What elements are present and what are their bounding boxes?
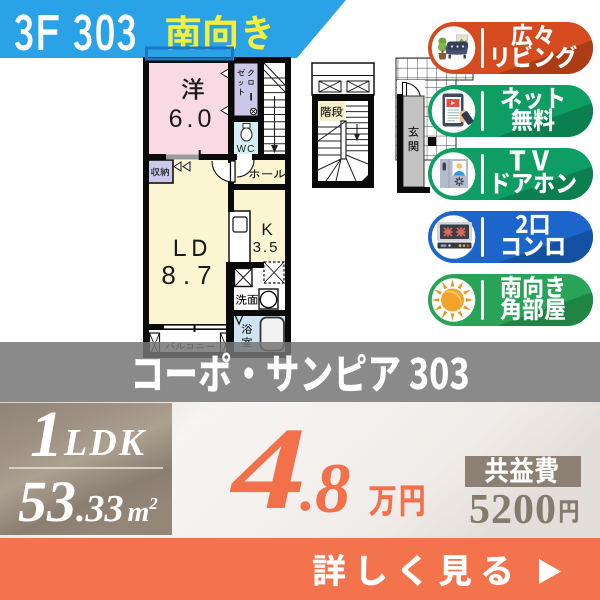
svg-text:3.5: 3.5 bbox=[253, 239, 280, 256]
svg-text:8.7: 8.7 bbox=[161, 260, 218, 290]
svg-text:8: 8 bbox=[315, 450, 351, 528]
svg-text:WC: WC bbox=[237, 144, 256, 155]
svg-text:4: 4 bbox=[229, 403, 307, 534]
svg-text:LDK: LDK bbox=[63, 422, 147, 464]
svg-text:6.0: 6.0 bbox=[169, 105, 216, 133]
svg-text:5200: 5200 bbox=[469, 487, 557, 533]
svg-text:.: . bbox=[300, 457, 315, 523]
svg-text:K: K bbox=[261, 220, 273, 239]
svg-text:1: 1 bbox=[30, 398, 63, 471]
